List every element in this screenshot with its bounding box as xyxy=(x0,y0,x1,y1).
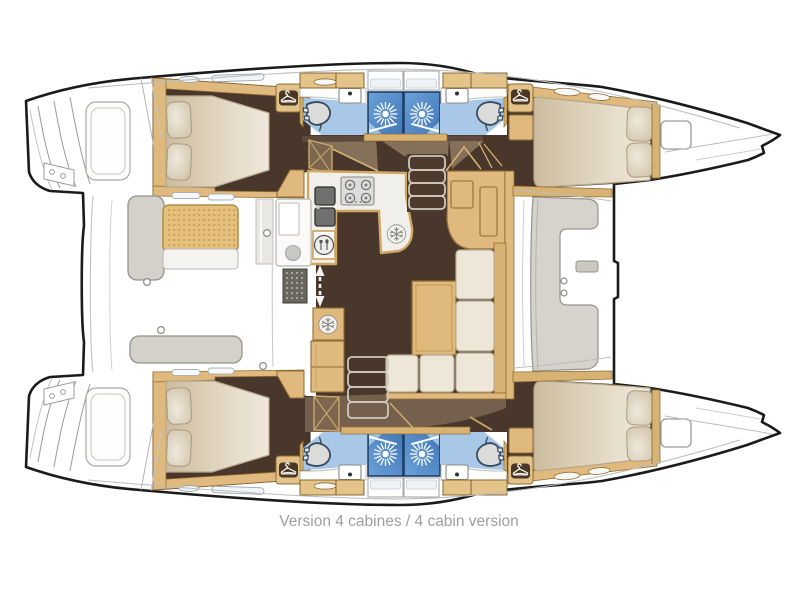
svg-text:Version 4 cabines / 4 cabin ve: Version 4 cabines / 4 cabin version xyxy=(279,513,519,530)
